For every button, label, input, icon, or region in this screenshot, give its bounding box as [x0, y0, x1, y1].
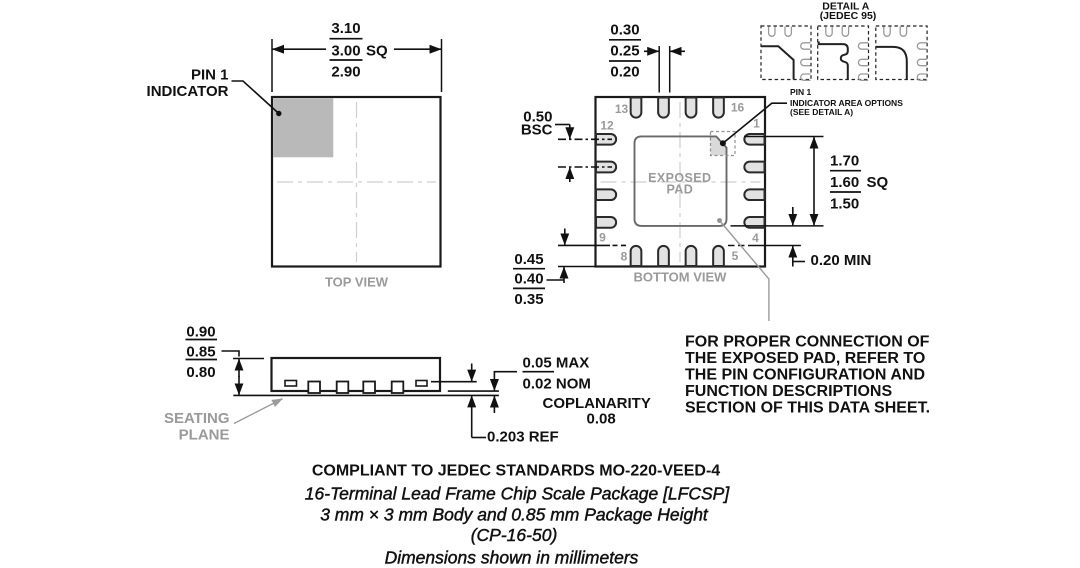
svg-text:THE EXPOSED PAD, REFER TO: THE EXPOSED PAD, REFER TO [685, 350, 925, 367]
svg-text:0.30: 0.30 [610, 22, 639, 39]
svg-text:0.80: 0.80 [186, 364, 215, 381]
svg-text:0.40: 0.40 [514, 271, 543, 288]
svg-text:0.05 MAX: 0.05 MAX [523, 355, 590, 372]
svg-text:Dimensions shown in millimeter: Dimensions shown in millimeters [385, 548, 639, 568]
svg-text:13: 13 [615, 102, 629, 116]
svg-text:1.70: 1.70 [830, 153, 859, 170]
svg-text:0.85: 0.85 [186, 344, 215, 361]
svg-text:SEATING: SEATING [164, 410, 230, 427]
svg-text:(SEE DETAIL A): (SEE DETAIL A) [790, 107, 853, 117]
svg-text:2.90: 2.90 [331, 64, 360, 81]
svg-text:0.203 REF: 0.203 REF [487, 429, 559, 446]
svg-text:0.20 MIN: 0.20 MIN [811, 252, 872, 269]
svg-text:BOTTOM VIEW: BOTTOM VIEW [634, 270, 728, 285]
svg-text:PIN 1: PIN 1 [790, 87, 812, 97]
svg-text:0.25: 0.25 [610, 43, 639, 60]
svg-text:PLANE: PLANE [179, 427, 230, 444]
svg-text:0.20: 0.20 [610, 64, 639, 81]
svg-text:0.45: 0.45 [514, 251, 543, 268]
svg-text:16-Terminal Lead Frame Chip Sc: 16-Terminal Lead Frame Chip Scale Packag… [305, 484, 731, 504]
svg-text:FOR PROPER CONNECTION OF: FOR PROPER CONNECTION OF [685, 334, 930, 351]
svg-text:(JEDEC 95): (JEDEC 95) [820, 10, 877, 22]
svg-text:0.02 NOM: 0.02 NOM [523, 376, 591, 393]
svg-text:3.10: 3.10 [331, 20, 360, 37]
svg-text:16: 16 [731, 101, 745, 115]
svg-text:(CP-16-50): (CP-16-50) [471, 525, 558, 545]
svg-text:1.60: 1.60 [830, 174, 859, 191]
svg-text:0.35: 0.35 [514, 291, 543, 308]
svg-text:SQ: SQ [867, 174, 889, 191]
svg-text:SQ: SQ [366, 43, 388, 60]
svg-text:1.50: 1.50 [830, 196, 859, 213]
svg-text:4: 4 [752, 231, 759, 245]
svg-text:BSC: BSC [521, 122, 553, 139]
svg-text:0.90: 0.90 [186, 324, 215, 341]
svg-text:COMPLIANT TO JEDEC STANDARDS M: COMPLIANT TO JEDEC STANDARDS MO-220-VEED… [312, 462, 720, 479]
svg-text:SECTION OF THIS DATA SHEET.: SECTION OF THIS DATA SHEET. [685, 400, 930, 417]
svg-text:PIN 1: PIN 1 [191, 67, 229, 84]
svg-text:TOP VIEW: TOP VIEW [325, 275, 389, 290]
svg-text:12: 12 [600, 119, 614, 133]
svg-text:FUNCTION DESCRIPTIONS: FUNCTION DESCRIPTIONS [685, 383, 892, 400]
svg-text:3.00: 3.00 [331, 43, 360, 60]
svg-text:INDICATOR: INDICATOR [147, 83, 229, 100]
svg-text:COPLANARITY: COPLANARITY [543, 395, 651, 412]
svg-text:3 mm × 3 mm Body and 0.85 mm P: 3 mm × 3 mm Body and 0.85 mm Package Hei… [320, 505, 709, 525]
svg-text:THE PIN CONFIGURATION AND: THE PIN CONFIGURATION AND [685, 367, 925, 384]
svg-text:PAD: PAD [666, 183, 693, 197]
svg-text:0.08: 0.08 [587, 411, 616, 428]
svg-text:8: 8 [621, 250, 628, 264]
svg-text:9: 9 [599, 231, 606, 245]
svg-text:5: 5 [732, 249, 739, 263]
